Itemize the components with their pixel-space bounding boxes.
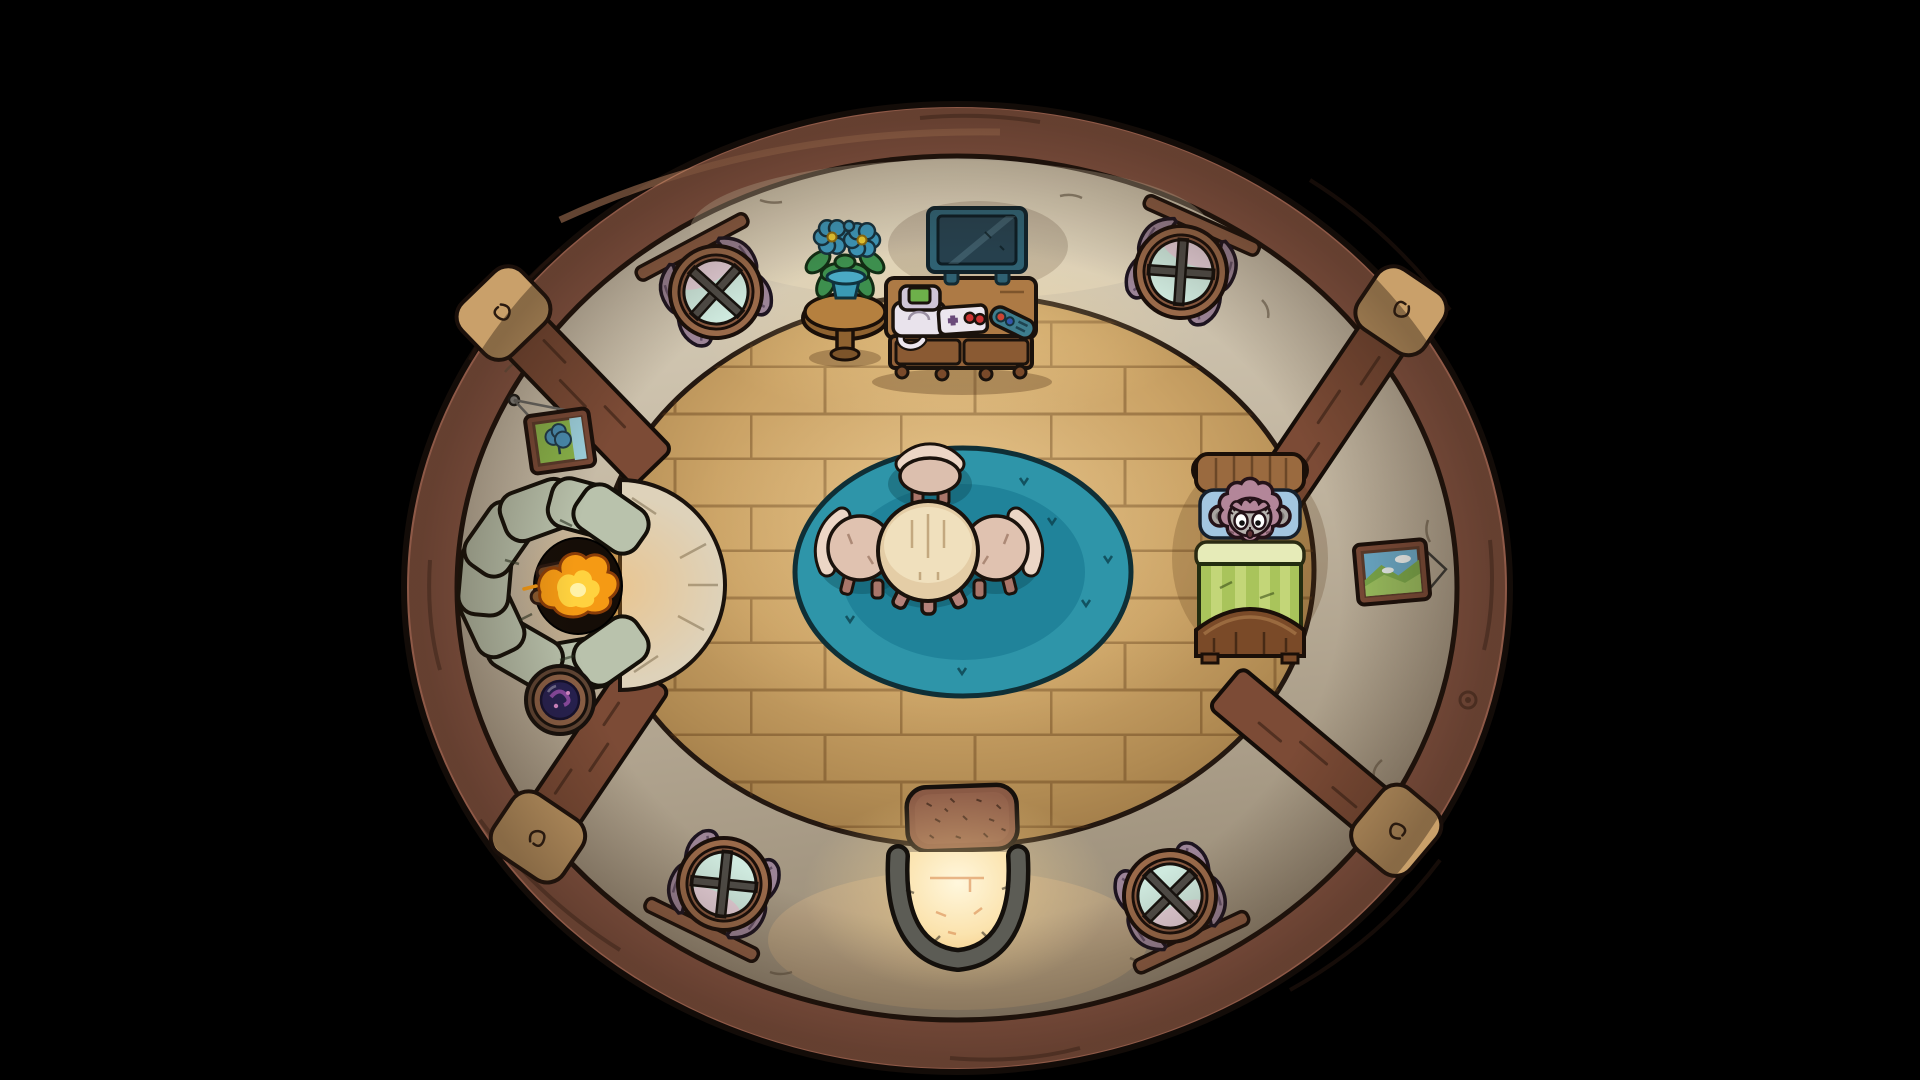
wheel [936,368,948,380]
wheel [1014,366,1026,378]
game-viewport [0,0,1920,1080]
mouth [1247,530,1253,538]
round-table[interactable] [878,501,978,614]
bed[interactable] [1172,454,1328,663]
porthole-ornament[interactable] [526,666,594,734]
porthole-glass [541,681,579,719]
button-b [975,314,986,325]
wheel [896,366,908,378]
game-cartridge[interactable] [909,288,930,303]
fireplace[interactable] [454,474,725,696]
button-a [964,312,975,323]
wheel [980,368,992,380]
entrance[interactable] [803,792,1113,992]
hair-fringe [1231,499,1269,512]
game-controller[interactable] [938,305,988,335]
tv[interactable] [928,208,1026,284]
room-scene [0,0,1920,1080]
drawer-right[interactable] [964,340,1028,364]
